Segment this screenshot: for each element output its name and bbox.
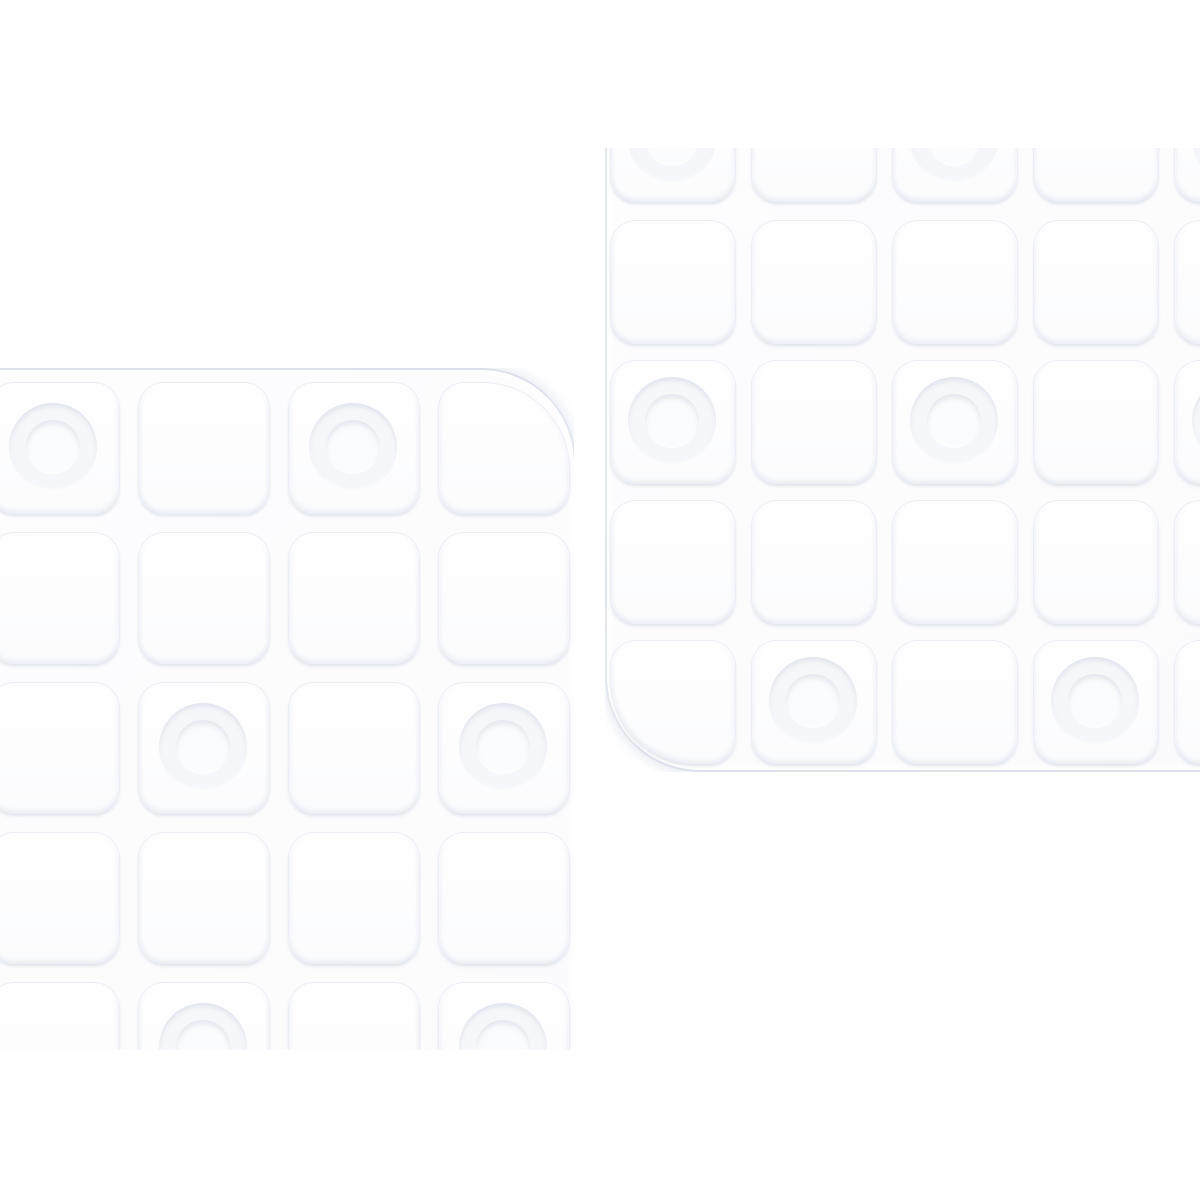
- mat-cell: [1033, 148, 1159, 202]
- suction-cup: [910, 377, 998, 465]
- mat-cell: [138, 532, 270, 664]
- mat-cell: [892, 500, 1018, 624]
- mat-cell: [288, 532, 420, 664]
- shower-mat-bottom-left: [0, 368, 574, 1050]
- mat-cell: [892, 220, 1018, 344]
- mat-cell: [438, 832, 570, 964]
- mat-cell: [751, 148, 877, 202]
- product-photo-shower-mats: [0, 0, 1200, 1200]
- suction-cup-center: [26, 420, 80, 474]
- suction-cup: [459, 703, 547, 791]
- suction-cup-center: [476, 720, 530, 774]
- mat-cell: [610, 640, 736, 764]
- suction-cup-center: [1068, 674, 1122, 728]
- suction-cup-center: [645, 394, 699, 448]
- suction-cup-center: [645, 148, 699, 166]
- suction-cup-center: [326, 420, 380, 474]
- mat-cell: [751, 220, 877, 344]
- mat-cell: [288, 832, 420, 964]
- mat-cell: [1033, 360, 1159, 484]
- mat-cell: [138, 382, 270, 514]
- shower-mat-top-right: [605, 148, 1200, 772]
- mat-cell: [288, 682, 420, 814]
- mat-cell: [1033, 220, 1159, 344]
- mat-cell: [892, 640, 1018, 764]
- mat-cell: [0, 982, 120, 1050]
- mat-cell: [138, 832, 270, 964]
- suction-cup: [309, 403, 397, 491]
- mat-cell: [1174, 640, 1200, 764]
- suction-cup: [9, 403, 97, 491]
- mat-cell: [0, 682, 120, 814]
- suction-cup: [769, 657, 857, 745]
- mat-cell: [751, 500, 877, 624]
- mat-cell: [1174, 220, 1200, 344]
- mat-cell: [610, 500, 736, 624]
- mat-cell: [0, 832, 120, 964]
- mat-cell: [1174, 500, 1200, 624]
- mat-cell: [751, 360, 877, 484]
- suction-cup-center: [786, 674, 840, 728]
- suction-cup-center: [476, 1020, 530, 1050]
- suction-cup-center: [927, 394, 981, 448]
- mat-cell: [288, 982, 420, 1050]
- mat-cell: [610, 220, 736, 344]
- mat-cell: [1033, 500, 1159, 624]
- mat-cell: [0, 532, 120, 664]
- suction-cup: [159, 703, 247, 791]
- suction-cup: [1051, 657, 1139, 745]
- mat-cell: [438, 532, 570, 664]
- suction-cup-center: [176, 1020, 230, 1050]
- suction-cup-center: [176, 720, 230, 774]
- suction-cup-center: [927, 148, 981, 166]
- suction-cup: [628, 377, 716, 465]
